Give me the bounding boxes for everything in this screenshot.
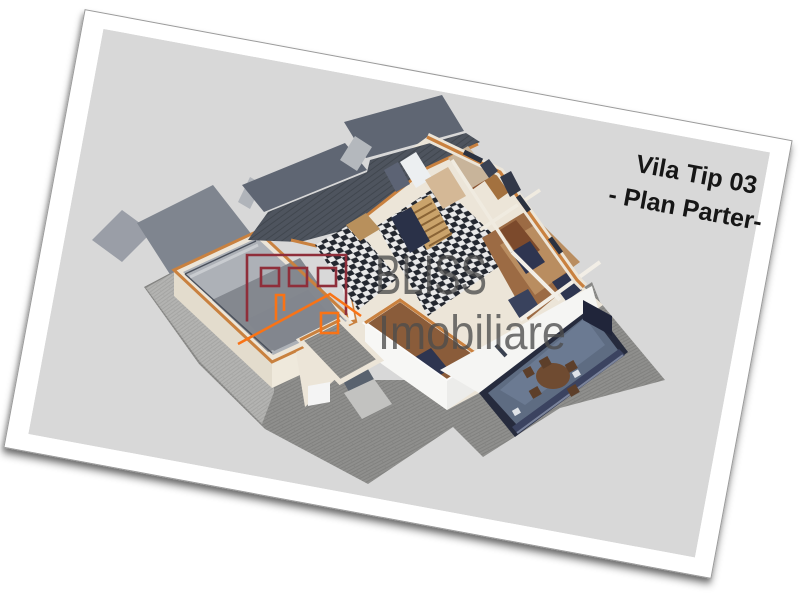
svg-text:BLISS: BLISS [375,243,487,306]
svg-text:Imobiliare: Imobiliare [378,307,566,360]
